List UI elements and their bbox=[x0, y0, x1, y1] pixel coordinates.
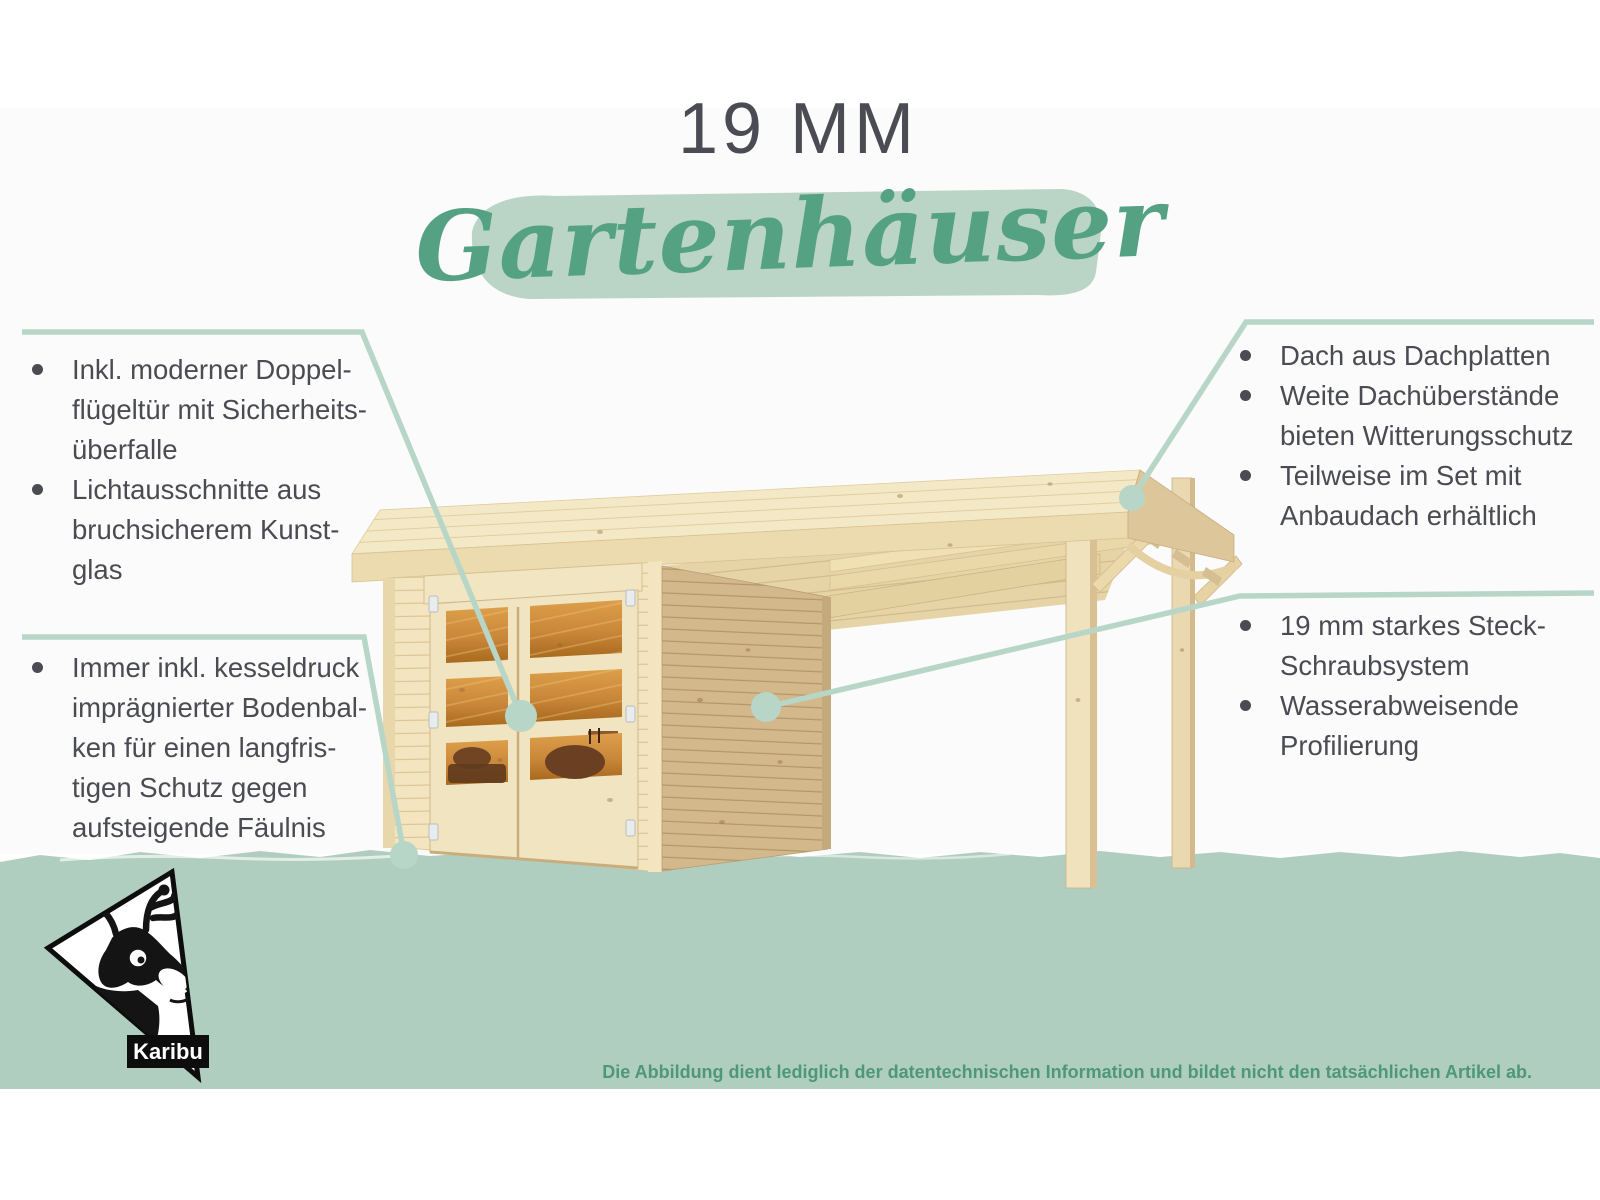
cabin-side-wall bbox=[662, 566, 831, 871]
double-door bbox=[429, 590, 638, 868]
marker-door bbox=[505, 700, 537, 732]
infographic-root: 19 MM Gartenhäuser Inkl. moderner Doppel… bbox=[0, 0, 1600, 1200]
scene-illustration bbox=[0, 0, 1600, 1200]
door-glass-right-leaf bbox=[530, 600, 622, 780]
marker-wall bbox=[751, 692, 781, 722]
marker-roof bbox=[1119, 485, 1145, 511]
marker-base bbox=[390, 841, 418, 869]
brush-stroke bbox=[472, 189, 1101, 299]
ground-band bbox=[0, 850, 1600, 1089]
